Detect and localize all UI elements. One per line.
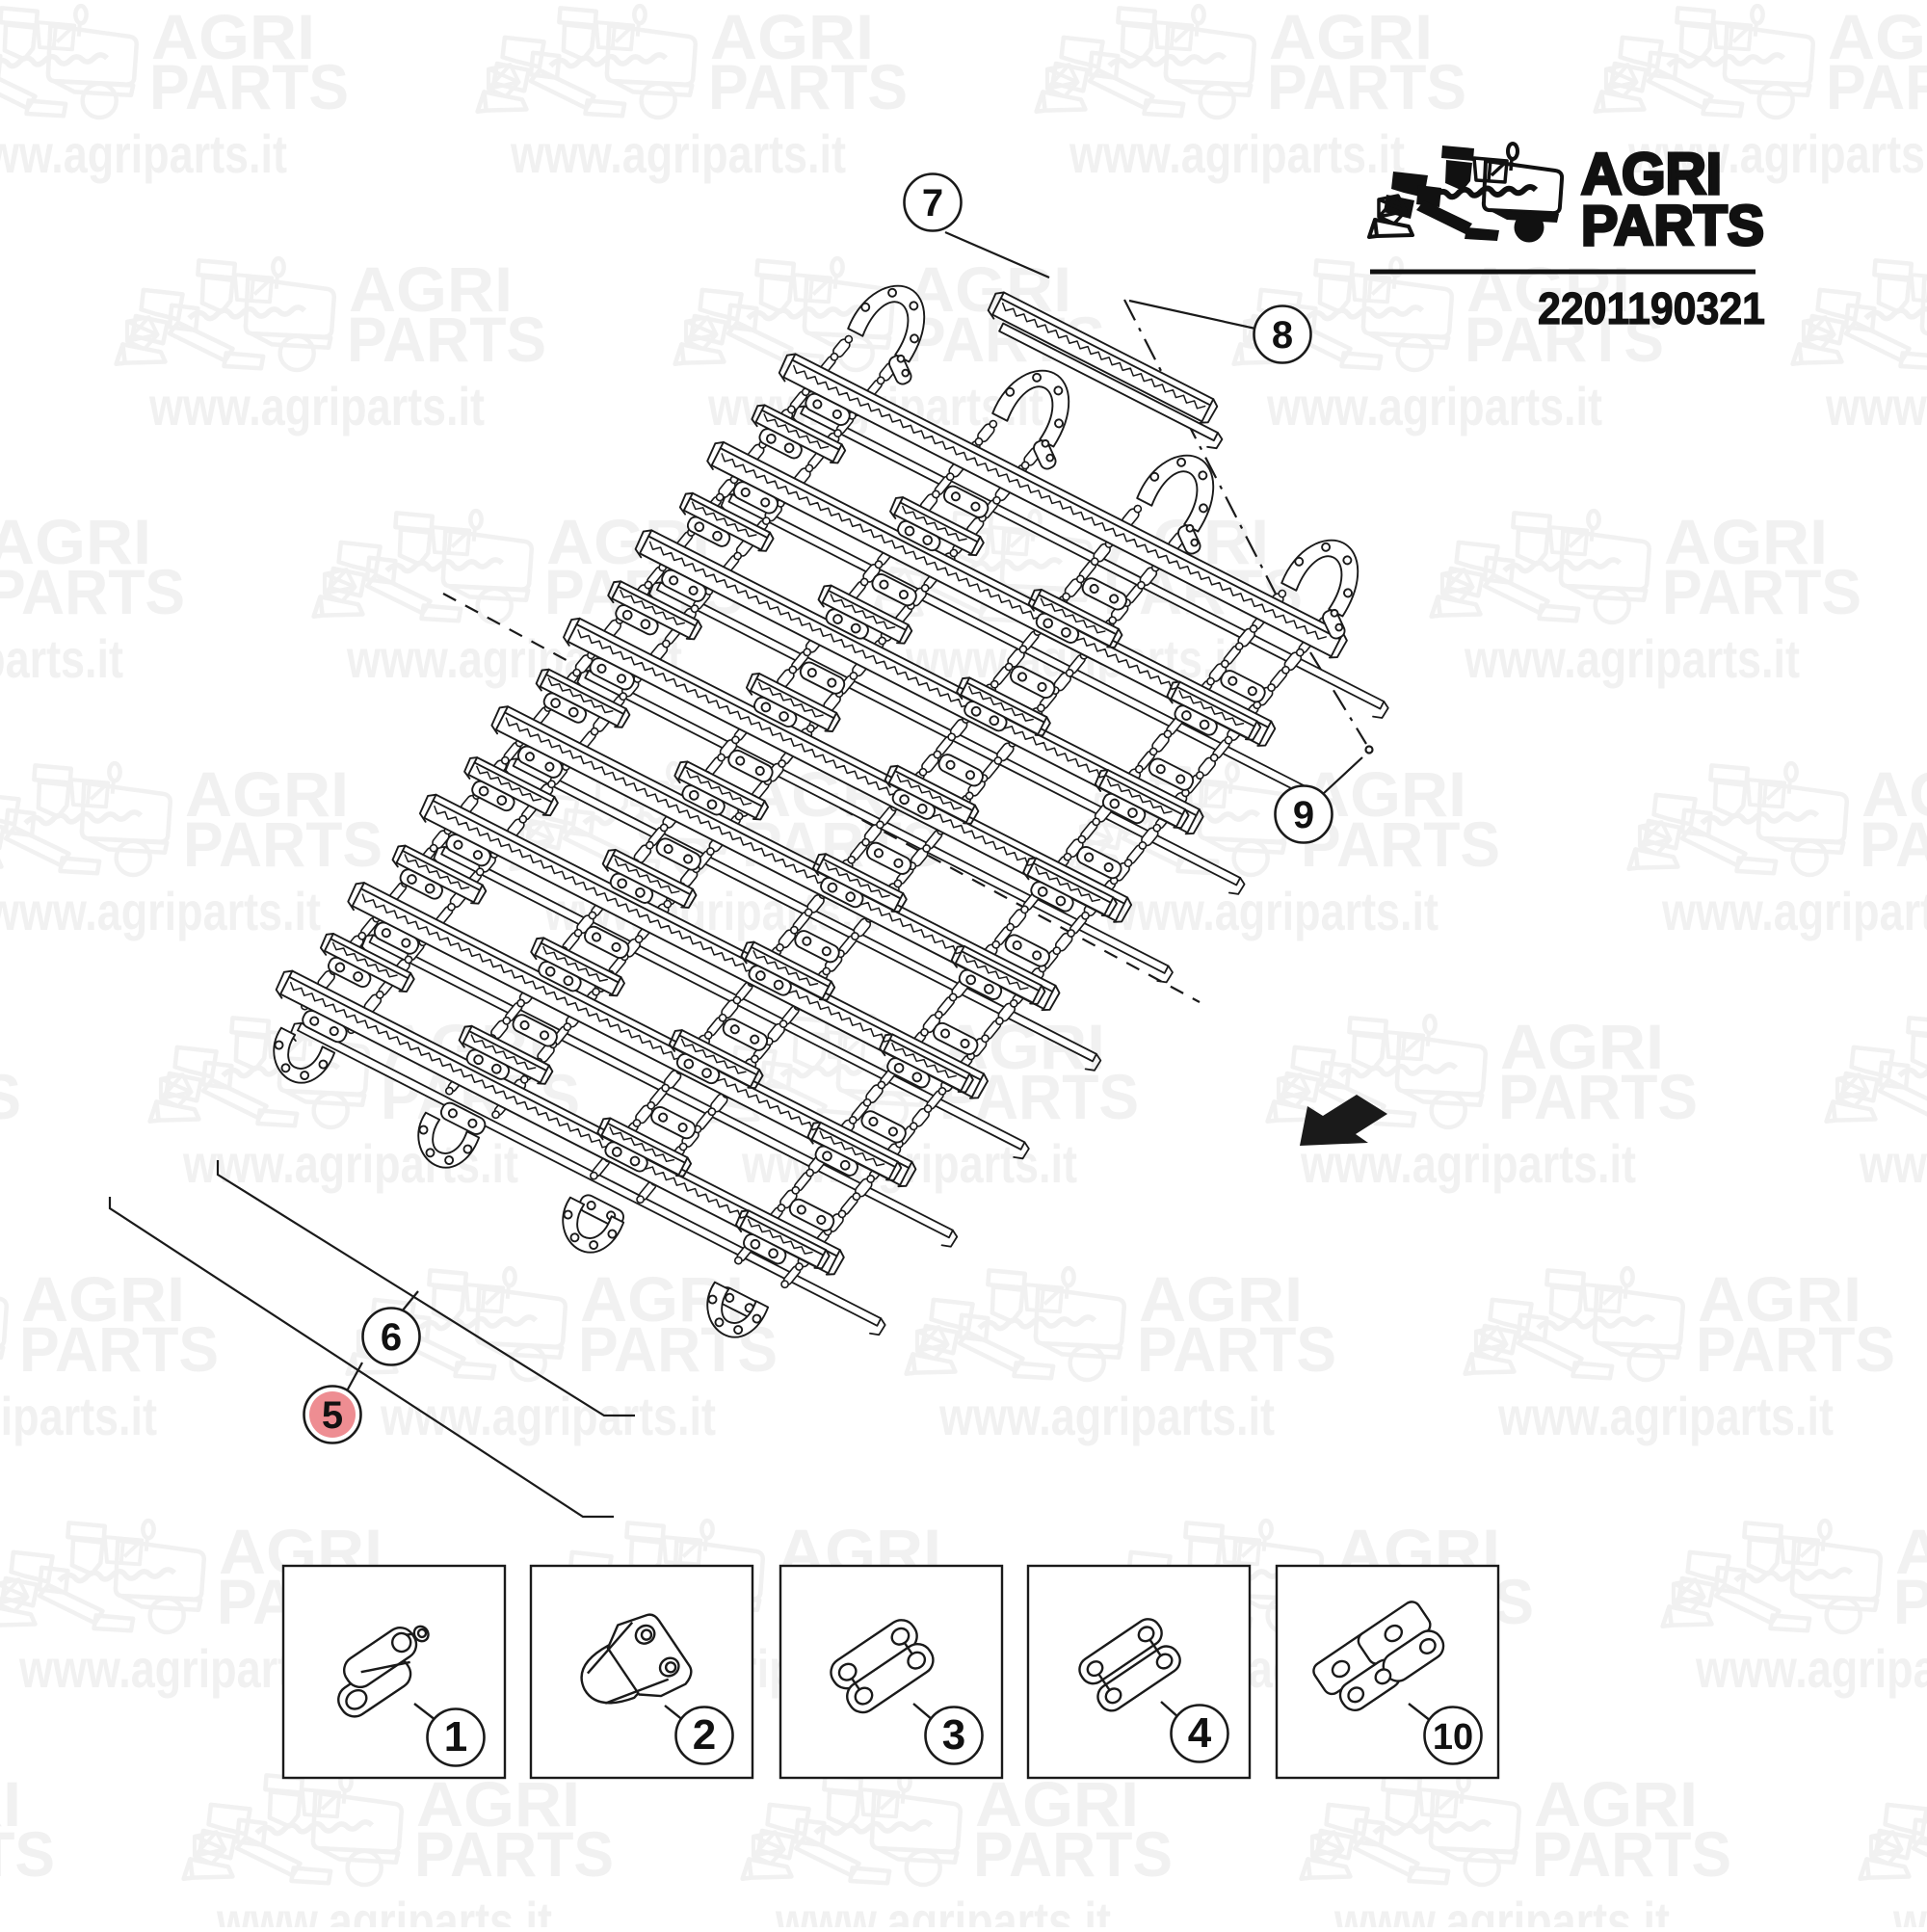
svg-text:1: 1 — [444, 1713, 467, 1760]
svg-text:3: 3 — [942, 1711, 965, 1759]
svg-text:4: 4 — [1188, 1709, 1212, 1757]
svg-text:PARTS: PARTS — [1581, 195, 1764, 257]
svg-text:9: 9 — [1293, 794, 1314, 836]
svg-text:10: 10 — [1433, 1717, 1473, 1758]
svg-text:6: 6 — [381, 1316, 402, 1359]
svg-text:8: 8 — [1272, 314, 1293, 357]
svg-text:7: 7 — [922, 182, 943, 225]
svg-text:2: 2 — [693, 1711, 716, 1759]
svg-text:5: 5 — [322, 1394, 343, 1437]
svg-text:2201190321: 2201190321 — [1538, 283, 1765, 333]
